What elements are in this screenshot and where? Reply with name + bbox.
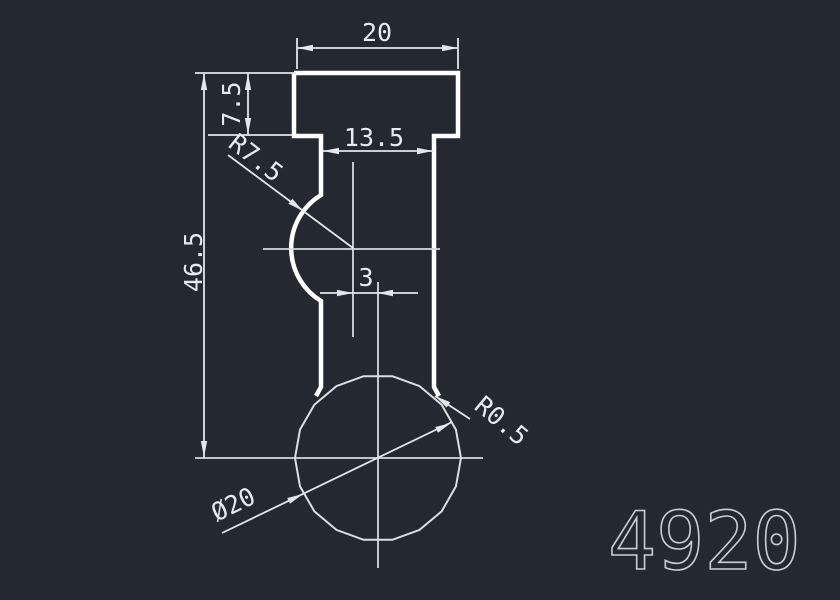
dim-arrow-icon — [287, 494, 303, 504]
dim-head-width: 20 — [297, 18, 458, 69]
dim-groove-radius: R7.5 — [223, 128, 353, 248]
dim-label-overall-height: 46.5 — [179, 232, 208, 292]
dim-arrow-icon — [201, 74, 207, 90]
cad-canvas: 20 46.5 7.5 13.5 R7.5 — [0, 0, 840, 600]
dim-arrow-icon — [442, 45, 458, 51]
part-profile-path — [291, 73, 458, 396]
dim-label-fillet-radius: R0.5 — [469, 390, 534, 451]
dim-arrow-icon — [337, 290, 353, 296]
dim-center-offset: 3 — [320, 263, 418, 296]
dim-label-sphere-diameter: Ø20 — [207, 481, 260, 527]
dim-arrow-icon — [377, 290, 393, 296]
dim-label-groove-radius: R7.5 — [223, 128, 288, 188]
dim-arrow-icon — [297, 45, 313, 51]
dim-arrow-icon — [417, 148, 433, 154]
dim-arrow-icon — [323, 148, 339, 154]
dim-label-head-height: 7.5 — [217, 81, 246, 126]
part-drawing-svg: 20 46.5 7.5 13.5 R7.5 — [0, 0, 840, 600]
dim-head-height: 7.5 — [208, 73, 292, 135]
dimension-line — [222, 422, 452, 533]
dim-sphere-diameter: Ø20 — [207, 422, 452, 533]
dim-label-center-offset: 3 — [358, 263, 373, 292]
dim-label-head-width: 20 — [362, 18, 392, 47]
dim-arrow-icon — [435, 423, 451, 433]
dim-neck-width: 13.5 — [323, 123, 433, 154]
dim-overall-height: 46.5 — [179, 73, 296, 458]
part-number-text: 4920 — [608, 495, 801, 588]
dim-label-neck-width: 13.5 — [344, 123, 404, 152]
dim-arrow-icon — [201, 441, 207, 457]
